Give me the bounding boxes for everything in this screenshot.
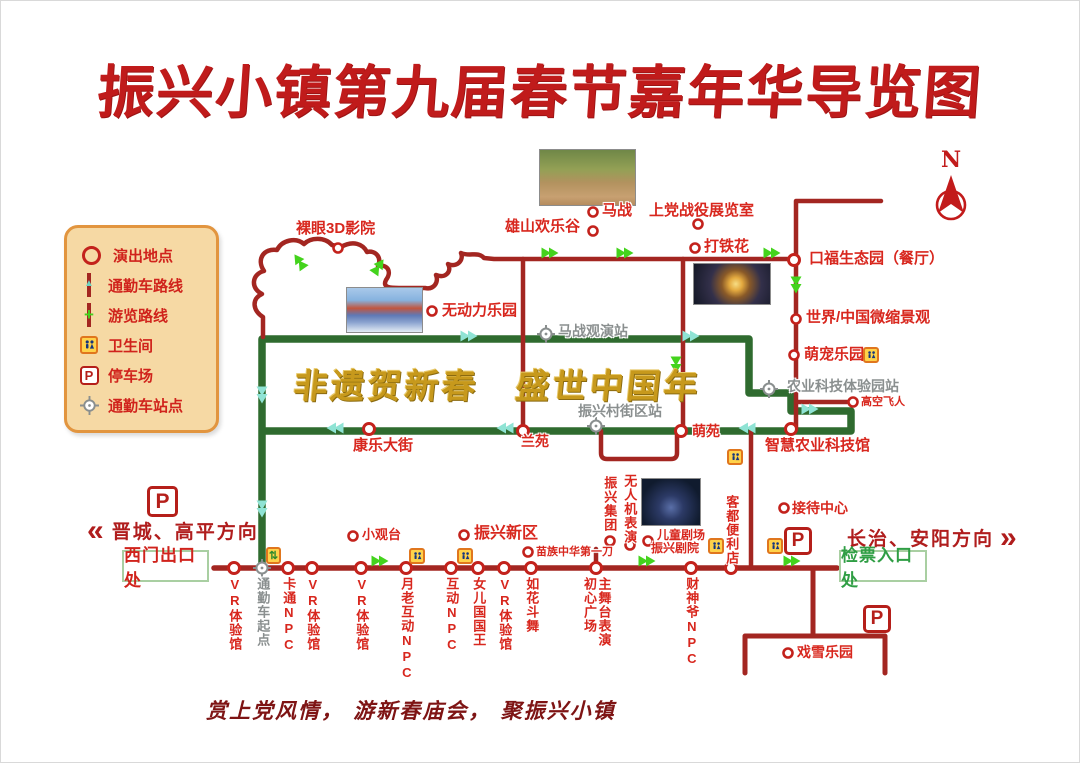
toilet-icon	[863, 347, 879, 363]
map-label: 初心广场 主舞台表演	[581, 577, 610, 647]
sparks-photo	[693, 263, 771, 305]
night-photo	[641, 478, 701, 526]
station-circle	[229, 563, 240, 574]
toilet-icon	[457, 548, 473, 564]
station-circle	[307, 563, 318, 574]
toilet-icon	[409, 548, 425, 564]
toilet-icon	[767, 538, 783, 554]
map-label: 马战	[602, 203, 632, 220]
legend-label: 游览路线	[108, 305, 168, 326]
legend-row-parking: P 停车场	[79, 360, 206, 390]
map-label: 兰苑	[521, 434, 549, 450]
venue-circle	[780, 504, 789, 513]
map-label: 裸眼3D影院	[296, 221, 375, 238]
map-label: 农业科技体验园站	[787, 379, 899, 395]
station-circle	[364, 424, 375, 435]
map-label: 苗族中华第一刀	[536, 546, 613, 558]
direction-west: « 晋城、高平方向	[87, 517, 259, 544]
station-circle	[786, 424, 797, 435]
map-label: 萌苑	[692, 424, 720, 440]
legend-row-tour-route: + 游览路线	[79, 300, 206, 330]
station-circle	[789, 255, 800, 266]
map-label: 无人机表演	[622, 474, 637, 544]
venue-circle	[784, 649, 793, 658]
route-direction-arrow-icon	[257, 387, 268, 404]
venue-circle	[694, 220, 703, 229]
map-label: VR体验馆	[305, 577, 320, 651]
map-label: 振兴新区	[474, 525, 538, 543]
map-label: 康乐大街	[353, 438, 413, 455]
venue-circle	[606, 537, 615, 546]
venue-circle	[790, 351, 799, 360]
map-label: 女儿国国王	[471, 577, 486, 647]
venue-circle	[334, 244, 343, 253]
legend-box: 演出地点 ▲ 通勤车路线 + 游览路线 卫生间 P 停车场 通勤车站点	[64, 225, 219, 433]
map-label: 上党战役展览室	[649, 203, 754, 220]
direction-west-label: 晋城、高平方向	[112, 517, 259, 544]
route-direction-arrow-icon	[784, 556, 801, 567]
map-label: 智慧农业科技馆	[765, 438, 870, 455]
route-direction-arrow-icon	[257, 501, 268, 518]
map-label: 世界/中国微缩景观	[806, 310, 930, 327]
compass-arrow-icon	[927, 173, 975, 227]
map-label: 高空飞人	[861, 396, 905, 408]
venue-circle	[792, 315, 801, 324]
chevron-left-icon: «	[87, 519, 106, 543]
station-circle	[473, 563, 484, 574]
legend-label: 通勤车站点	[108, 395, 183, 416]
map-label: 财神爷NPC	[684, 577, 699, 667]
map-label: VR体验馆	[227, 577, 242, 651]
map-label: VR体验馆	[354, 577, 369, 651]
station-circle	[446, 563, 457, 574]
footer-slogan: 赏上党风情， 游新春庙会， 聚振兴小镇	[206, 695, 616, 725]
venue-circle	[589, 208, 598, 217]
map-label: 如花斗舞	[524, 577, 539, 633]
legend-label: 通勤车路线	[108, 275, 183, 296]
station-circle	[499, 563, 510, 574]
route-direction-arrow-icon	[290, 251, 309, 271]
toilet-icon	[80, 336, 98, 354]
map-label: VR体验馆	[497, 577, 512, 651]
map-label: 戏雪乐园	[797, 645, 853, 661]
map-label: 互动NPC	[444, 577, 459, 653]
legend-label: 停车场	[108, 365, 153, 386]
page-title: 振兴小镇第九届春节嘉年华导览图	[0, 47, 1080, 129]
map-label: 小观台	[362, 528, 401, 543]
map-label: 振兴集团	[602, 476, 617, 532]
route-direction-arrow-icon	[372, 556, 389, 567]
map-label: 客都便利店	[724, 495, 739, 565]
legend-label: 卫生间	[108, 335, 153, 356]
venue-circle	[460, 531, 469, 540]
horse-battle-photo	[539, 149, 636, 206]
map-label: 马战观演站	[558, 324, 628, 340]
route-direction-arrow-icon	[639, 556, 656, 567]
east-ticket-entrance: 检票入口处	[839, 550, 927, 582]
venue-circle	[691, 244, 700, 253]
legend-row-shuttle-station: 通勤车站点	[79, 390, 206, 420]
toilet-icon	[708, 538, 724, 554]
carnival-guide-map: 振兴小镇第九届春节嘉年华导览图 演出地点 ▲ 通勤车路线 + 游览路线 卫生间 …	[0, 0, 1080, 763]
map-label: 雄山欢乐谷	[505, 219, 580, 236]
venue-circle	[428, 307, 437, 316]
boat-photo	[346, 287, 423, 333]
venue-circle	[589, 227, 598, 236]
legend-label: 演出地点	[113, 245, 173, 266]
west-exit-gate: 西门出口处	[122, 550, 209, 582]
map-label: 卡通NPC	[281, 577, 296, 653]
station-circle	[686, 563, 697, 574]
legend-row-shuttle-route: ▲ 通勤车路线	[79, 270, 206, 300]
shuttle-route-icon: ▲	[79, 272, 99, 298]
venue-circle	[849, 398, 858, 407]
chevron-right-icon: »	[1000, 526, 1019, 550]
performance-venue-icon	[82, 246, 101, 265]
map-label: 接待中心	[792, 501, 848, 517]
map-label: 通勤车起点	[255, 577, 270, 647]
legend-row-performance-venue: 演出地点	[79, 240, 206, 270]
parking-icon: P	[80, 366, 99, 385]
venue-circle	[524, 548, 533, 557]
map-label: 无动力乐园	[442, 303, 517, 320]
venue-circle	[349, 532, 358, 541]
map-label: 振兴剧院	[651, 542, 699, 555]
station-circle	[526, 563, 537, 574]
map-label: 萌宠乐园	[804, 347, 864, 364]
transfer-stairs-icon: ⇅	[266, 547, 281, 564]
station-circle	[591, 563, 602, 574]
parking-icon: P	[784, 527, 812, 555]
map-label: 月老互动NPC	[399, 577, 414, 681]
station-circle	[283, 563, 294, 574]
parking-icon: P	[863, 605, 891, 633]
station-circle	[356, 563, 367, 574]
legend-row-toilet: 卫生间	[79, 330, 206, 360]
map-label: 打铁花	[704, 239, 749, 256]
shuttle-station-icon	[79, 392, 99, 418]
festival-banner: 非遗贺新春 盛世中国年	[291, 359, 703, 408]
compass: N	[923, 147, 979, 232]
compass-north-label: N	[923, 147, 979, 173]
route-direction-arrow-icon	[791, 277, 802, 294]
station-circle	[676, 426, 687, 437]
tour-route-icon: +	[79, 302, 99, 328]
road-line	[601, 431, 677, 459]
station-circle	[401, 563, 412, 574]
map-label: 口福生态园（餐厅）	[809, 251, 944, 268]
toilet-icon	[727, 449, 743, 465]
parking-icon: P	[147, 486, 178, 517]
